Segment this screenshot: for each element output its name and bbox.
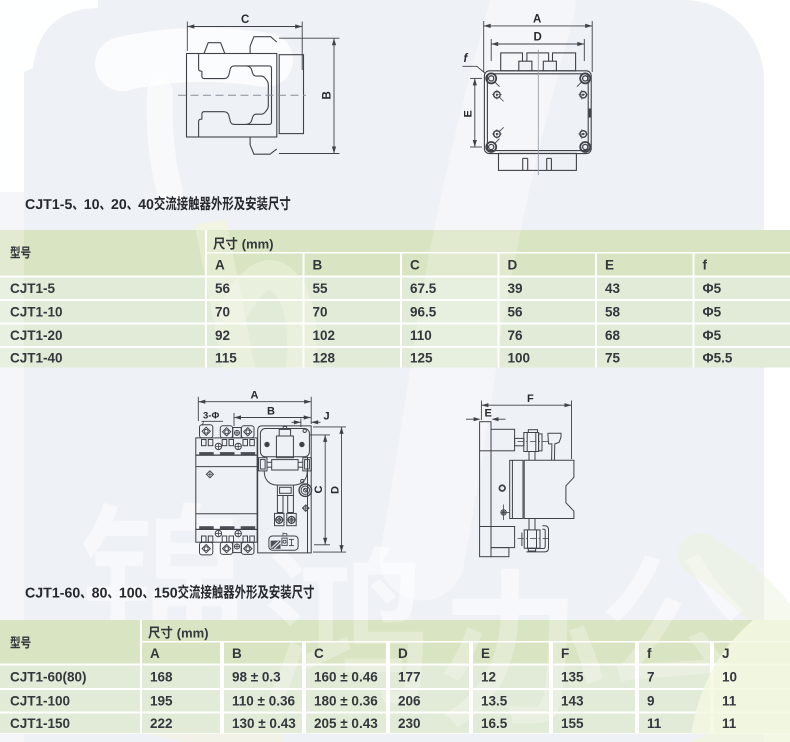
- svg-text:B: B: [313, 258, 323, 273]
- svg-text:A: A: [150, 646, 160, 661]
- svg-text:E: E: [463, 110, 475, 117]
- svg-text:56: 56: [215, 281, 231, 296]
- svg-text:11: 11: [722, 694, 737, 709]
- svg-text:10: 10: [722, 670, 737, 685]
- svg-text:3-Φ: 3-Φ: [203, 411, 219, 422]
- svg-text:C: C: [314, 646, 324, 661]
- svg-text:B: B: [267, 406, 275, 418]
- svg-text:56: 56: [508, 305, 524, 320]
- svg-text:230: 230: [398, 716, 421, 731]
- svg-text:E: E: [485, 408, 492, 420]
- svg-text:205 ± 0.43: 205 ± 0.43: [314, 716, 378, 731]
- svg-text:68: 68: [605, 328, 621, 343]
- svg-text:F: F: [527, 393, 534, 405]
- svg-text:CJT1-60(80): CJT1-60(80): [10, 670, 87, 685]
- svg-text:16.5: 16.5: [481, 716, 508, 731]
- svg-text:J: J: [324, 411, 330, 423]
- svg-text:13.5: 13.5: [481, 694, 508, 709]
- svg-text:CJT1-150: CJT1-150: [10, 716, 70, 731]
- svg-text:206: 206: [398, 694, 421, 709]
- svg-text:J: J: [722, 646, 730, 661]
- svg-text:110: 110: [410, 328, 432, 343]
- svg-text:143: 143: [561, 694, 584, 709]
- svg-text:C: C: [241, 14, 249, 26]
- svg-text:Φ5.5: Φ5.5: [703, 351, 733, 366]
- svg-text:180 ± 0.36: 180 ± 0.36: [314, 694, 378, 709]
- svg-text:102: 102: [313, 328, 336, 343]
- svg-text:125: 125: [410, 351, 433, 366]
- svg-text:A: A: [251, 390, 259, 402]
- svg-text:D: D: [398, 646, 408, 661]
- svg-text:195: 195: [150, 694, 173, 709]
- svg-text:76: 76: [508, 328, 524, 343]
- svg-text:CJT1-100: CJT1-100: [10, 694, 70, 709]
- svg-text:130 ± 0.43: 130 ± 0.43: [232, 716, 296, 731]
- svg-text:D: D: [508, 258, 518, 273]
- svg-text:B: B: [322, 91, 334, 99]
- svg-text:Φ5: Φ5: [703, 328, 722, 343]
- svg-text:CJT1-20: CJT1-20: [10, 328, 63, 343]
- svg-text:135: 135: [561, 670, 584, 685]
- svg-text:CJT1-40: CJT1-40: [10, 351, 63, 366]
- svg-text:CJT1-5: CJT1-5: [10, 281, 56, 296]
- svg-text:12: 12: [481, 670, 496, 685]
- svg-text:E: E: [605, 258, 614, 273]
- svg-text:155: 155: [561, 716, 584, 731]
- svg-text:58: 58: [605, 305, 621, 320]
- svg-text:D: D: [330, 486, 342, 494]
- svg-text:A: A: [215, 258, 225, 273]
- svg-text:f: f: [703, 258, 708, 273]
- svg-text:F: F: [561, 646, 569, 661]
- svg-text:96.5: 96.5: [410, 305, 437, 320]
- svg-text:11: 11: [647, 716, 662, 731]
- svg-text:70: 70: [215, 305, 230, 320]
- svg-text:C: C: [410, 258, 420, 273]
- svg-text:CJT1-10: CJT1-10: [10, 305, 63, 320]
- svg-text:55: 55: [313, 281, 329, 296]
- svg-text:67.5: 67.5: [410, 281, 437, 296]
- svg-text:A: A: [533, 14, 541, 26]
- svg-text:D: D: [534, 32, 542, 44]
- svg-text:160 ± 0.46: 160 ± 0.46: [314, 670, 378, 685]
- svg-text:222: 222: [150, 716, 173, 731]
- svg-text:Φ5: Φ5: [703, 281, 722, 296]
- svg-text:177: 177: [398, 670, 421, 685]
- svg-text:11: 11: [722, 716, 737, 731]
- svg-text:168: 168: [150, 670, 173, 685]
- svg-text:128: 128: [313, 351, 336, 366]
- svg-text:B: B: [232, 646, 242, 661]
- svg-text:70: 70: [313, 305, 328, 320]
- svg-text:C: C: [313, 486, 325, 494]
- svg-text:Φ5: Φ5: [703, 305, 722, 320]
- svg-text:E: E: [481, 646, 490, 661]
- svg-text:f: f: [647, 646, 652, 661]
- svg-text:92: 92: [215, 328, 230, 343]
- svg-text:75: 75: [605, 351, 621, 366]
- svg-text:9: 9: [647, 694, 655, 709]
- svg-text:f: f: [464, 53, 469, 65]
- svg-text:7: 7: [647, 670, 655, 685]
- svg-text:98 ± 0.3: 98 ± 0.3: [232, 670, 281, 685]
- svg-text:100: 100: [508, 351, 531, 366]
- svg-text:43: 43: [605, 281, 621, 296]
- svg-text:110 ± 0.36: 110 ± 0.36: [232, 694, 295, 709]
- svg-text:39: 39: [508, 281, 523, 296]
- svg-text:115: 115: [215, 351, 237, 366]
